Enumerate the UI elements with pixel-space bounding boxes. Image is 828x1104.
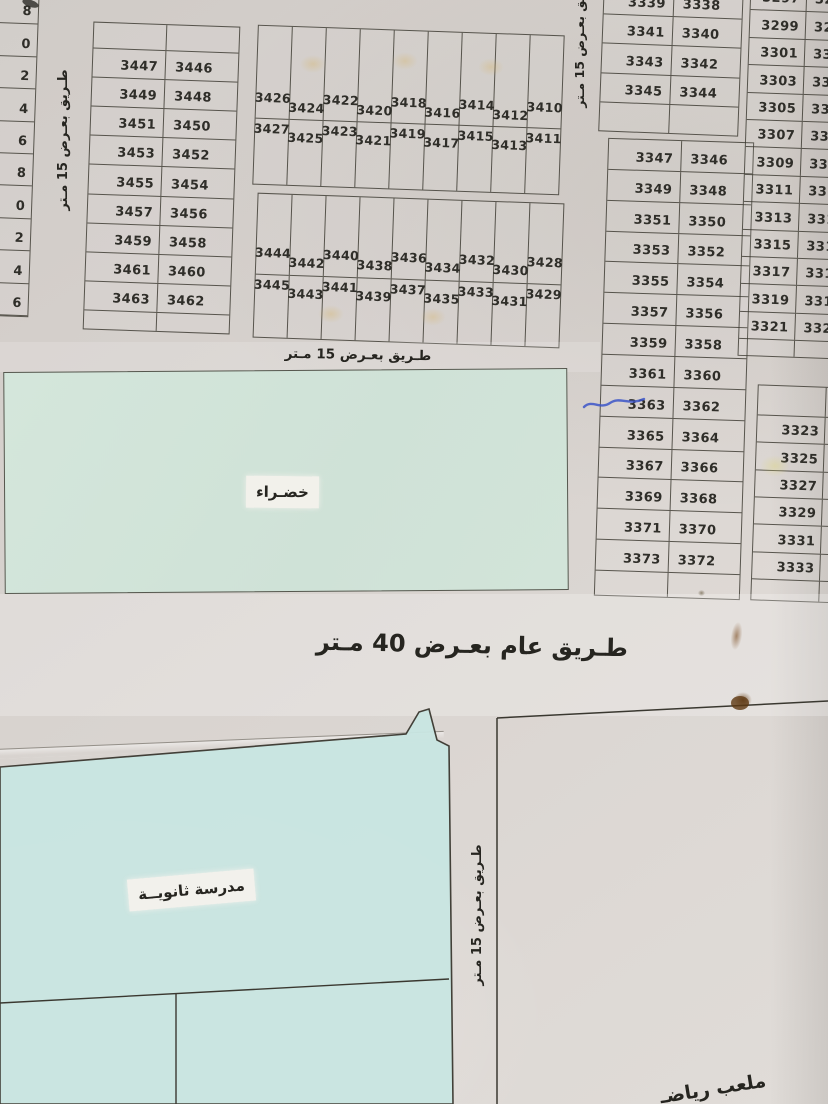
plot-number: 3359 <box>602 324 676 356</box>
plot-row: 3307 3306 <box>746 120 828 151</box>
plot-cell: 3419 <box>389 124 424 190</box>
plot-number: 3308 <box>801 149 828 178</box>
plot-row: 3357 3356 <box>603 293 748 328</box>
road-label-40: طـريق عام بعـرض 40 مـتر <box>322 623 623 667</box>
plot-number: 3418 <box>390 96 427 110</box>
plot-cell: 3432 <box>460 201 496 283</box>
plot-cell: 3443 <box>288 276 323 339</box>
plot-number: 3342 <box>671 46 740 77</box>
plot-number: 3421 <box>355 135 392 149</box>
plot-number: 3367 <box>599 447 673 479</box>
empty-plot-cell <box>595 571 740 600</box>
plot-number: 3333 <box>752 552 821 581</box>
plot-number: 3310 <box>800 177 828 206</box>
plot-strip: 3444 3445 <box>254 194 293 338</box>
plot-number: 3340 <box>672 17 741 48</box>
plot-number: 3358 <box>675 326 747 358</box>
plot-number: 3463 <box>84 281 158 312</box>
plot-row: 0 <box>0 184 32 219</box>
plot-number: 3341 <box>603 14 674 45</box>
plot-number: 3302 <box>804 67 828 96</box>
plot-cell: 3414 <box>459 33 495 128</box>
plot-number: 0 <box>0 22 37 56</box>
plot-number: 3347 <box>608 139 682 171</box>
plot-row: 3373 3372 <box>596 540 741 575</box>
plot-number: 3366 <box>671 450 743 482</box>
plot-number: 3352 <box>678 234 750 266</box>
plot-number: 3311 <box>744 175 801 203</box>
plot-number: 3417 <box>423 137 460 151</box>
sports-field-parcel <box>488 695 828 1104</box>
plot-strip: 3424 3425 <box>287 27 326 186</box>
plot-strip: 3418 3419 <box>389 30 428 189</box>
block-north-strips: 3426 3427 3424 3425 3422 <box>252 25 564 196</box>
plot-number: 2 <box>0 216 31 250</box>
plot-number: 3320 <box>795 313 828 342</box>
plot-number: 3301 <box>749 38 806 66</box>
plot-number: 3349 <box>607 170 681 202</box>
road-label-15-mid-vertical: طريق بعـرض 15 مـتر <box>569 0 589 137</box>
plot-number: 3410 <box>526 101 563 115</box>
plot-cell: 3442 <box>290 195 326 277</box>
plot-cell: 3426 <box>256 26 292 121</box>
plot-number: 3451 <box>90 107 164 138</box>
block-far-east-upper: 3297 3296 3299 3298 3301 3300 3303 3302 … <box>738 0 828 360</box>
plot-cell: 3433 <box>457 282 492 345</box>
plot-cell: 3424 <box>290 27 326 122</box>
plot-cell: 3422 <box>324 28 360 123</box>
plot-number: 3360 <box>674 357 746 389</box>
plot-cell: 3418 <box>392 30 428 125</box>
plot-row: 3315 3314 <box>742 229 828 260</box>
plot-row: 8 <box>0 0 39 25</box>
plot-number: 3457 <box>87 194 161 225</box>
plot-cell: 3412 <box>493 34 529 129</box>
plot-number: 3430 <box>492 264 529 278</box>
plot-number: 3411 <box>525 133 562 147</box>
plot-cell: 3415 <box>457 126 492 192</box>
plot-number: 3364 <box>672 419 744 451</box>
plot-number: 3312 <box>799 204 828 233</box>
plot-number: 3321 <box>739 312 796 340</box>
plot-row: 2 <box>0 216 31 251</box>
plot-number: 3445 <box>254 278 291 292</box>
plot-number: 3425 <box>287 132 324 146</box>
plot-cell: 3445 <box>254 274 289 337</box>
empty-plot-cell <box>84 310 230 333</box>
plot-cell: 3421 <box>355 123 390 189</box>
plot-number: 3441 <box>322 281 359 295</box>
pen-mark-scribble <box>582 394 646 414</box>
plot-cell: 3441 <box>322 277 357 340</box>
plot-row: 4 <box>0 87 35 122</box>
plot-number: 3317 <box>741 257 798 285</box>
plot-number: 3299 <box>750 10 807 38</box>
plot-row: 3325 <box>756 443 828 474</box>
plot-row: 8 <box>0 152 33 187</box>
plot-number: 3428 <box>527 256 564 270</box>
plot-number: 3433 <box>457 286 494 300</box>
plot-number: 3443 <box>287 288 324 302</box>
plot-number: 3454 <box>162 167 235 198</box>
plot-cell: 3438 <box>358 197 394 279</box>
plot-row: 3321 3320 <box>739 312 828 343</box>
plot-number: 3412 <box>492 109 529 123</box>
plot-number: 3455 <box>88 165 162 196</box>
plot-strip: 3422 3423 <box>321 28 360 187</box>
plot-row: 3317 3316 <box>741 257 828 288</box>
plot-number: 3300 <box>805 40 828 69</box>
plot-number: 3313 <box>743 202 800 230</box>
plot-cell: 3434 <box>426 200 462 282</box>
plot-row: 3313 3312 <box>743 202 828 233</box>
block-mid-strips: 3444 3445 3442 3443 3440 <box>253 193 565 349</box>
plot-number: 3305 <box>747 93 804 121</box>
plot-number: 3415 <box>457 130 494 144</box>
plot-number: 3416 <box>424 106 461 120</box>
plot-number: 3420 <box>356 104 393 118</box>
plot-strip: 3412 3413 <box>491 34 530 193</box>
plot-number: 3327 <box>755 470 824 499</box>
plot-strip: 3410 3411 <box>525 35 563 194</box>
plot-strip: 3436 3437 <box>390 198 429 342</box>
plot-number: 3315 <box>742 229 799 257</box>
plot-number: 4 <box>0 87 35 121</box>
plot-number: 3329 <box>754 497 823 526</box>
plot-row: 3351 3350 <box>606 201 751 236</box>
plot-number: 3436 <box>391 252 428 266</box>
plot-row: 6 <box>0 281 28 316</box>
plot-number: 3365 <box>600 416 674 448</box>
plot-row: 3329 <box>754 497 828 528</box>
plot-number: 3318 <box>796 286 828 315</box>
road-label-15-left-vertical: طـريق بعـرض 15 مـتر <box>53 49 73 231</box>
plot-number: 3434 <box>424 262 461 276</box>
plot-row: 3303 3302 <box>748 65 828 96</box>
plot-number: 3427 <box>253 123 290 137</box>
plot-number: 3298 <box>806 12 828 41</box>
plot-cell: 3429 <box>525 284 560 347</box>
left-edge-block: 8 0 2 4 6 8 0 2 4 6 <box>0 0 40 317</box>
plot-cell: 3435 <box>423 280 458 343</box>
plot-row: 3367 3366 <box>599 447 744 482</box>
plot-strip: 3414 3415 <box>457 33 496 192</box>
plot-strip: 3426 3427 <box>253 26 292 185</box>
plot-number: 3368 <box>670 480 742 512</box>
block-far-east-lower: 3323 3325 3327 3329 3331 3333 <box>750 384 828 603</box>
block-northeast: 3339 3338 3341 3340 3343 3342 3345 3344 <box>598 0 744 137</box>
plot-number: 3354 <box>677 265 749 297</box>
plot-number: 3323 <box>757 415 826 444</box>
plot-number: 3316 <box>797 259 828 288</box>
plot-cell: 3420 <box>358 29 394 124</box>
cadastral-map-photo: 8 0 2 4 6 8 0 2 4 6 <box>0 0 828 1104</box>
plot-number: 3437 <box>389 283 426 297</box>
plot-cell: 3440 <box>324 196 360 278</box>
plot-number: 3345 <box>600 73 671 104</box>
block-east: 3347 3346 3349 3348 3351 3350 3353 3352 … <box>594 138 754 600</box>
plot-cell: 3437 <box>390 279 425 342</box>
plot-number: 3446 <box>166 51 239 82</box>
plot-number: 3453 <box>89 136 163 167</box>
plot-row: 3371 3370 <box>597 509 742 544</box>
plot-number: 3458 <box>160 226 233 257</box>
plot-number: 3344 <box>670 76 739 107</box>
plot-row: 3311 3310 <box>744 175 828 206</box>
plot-number: 3348 <box>680 172 752 204</box>
plot-number: 3361 <box>601 355 675 387</box>
plot-cell: 3425 <box>287 120 322 186</box>
plot-number: 3304 <box>803 95 828 124</box>
plot-strip: 3442 3443 <box>288 195 327 339</box>
plot-row: 3323 <box>757 415 828 446</box>
plot-number: 3346 <box>681 141 753 173</box>
plot-number: 3447 <box>92 49 166 80</box>
school-area <box>0 703 460 1104</box>
plot-number: 4 <box>0 249 30 283</box>
plot-cell: 3423 <box>321 122 356 188</box>
plot-number: 3362 <box>673 388 745 420</box>
plot-cell: 3436 <box>392 198 428 280</box>
plot-number: 3439 <box>355 290 392 304</box>
plot-number: 6 <box>0 281 28 315</box>
plot-number: 3423 <box>321 125 358 139</box>
plot-cell: 3410 <box>527 35 563 130</box>
green-area-label: خضـراء <box>246 476 319 509</box>
plot-row: 3333 <box>752 552 828 583</box>
plot-row: 3347 3346 <box>608 139 753 174</box>
plot-number: 3319 <box>740 284 797 312</box>
plot-number: 3429 <box>525 288 562 302</box>
plot-number: 3351 <box>606 201 680 233</box>
plot-number: 3424 <box>288 102 325 116</box>
plot-number: 3331 <box>753 525 822 554</box>
plot-number: 3356 <box>676 295 748 327</box>
plot-cell: 3416 <box>425 32 461 127</box>
plot-number: 3372 <box>668 542 740 574</box>
plot-number: 3419 <box>389 128 426 142</box>
plot-row: 2 <box>0 55 36 90</box>
plot-cell: 3444 <box>256 194 292 276</box>
plot-row: 0 <box>0 22 37 57</box>
plot-strip: 3440 3441 <box>322 196 361 340</box>
plot-strip: 3430 3431 <box>491 202 530 346</box>
plot-row: 4 <box>0 249 30 284</box>
plot-number: 3460 <box>159 255 232 286</box>
plot-number: 3353 <box>605 231 679 263</box>
plot-row: 3327 <box>755 470 828 501</box>
stain <box>729 621 744 650</box>
plot-number: 2 <box>0 55 36 89</box>
plot-cell: 3439 <box>356 278 391 341</box>
plot-number: 8 <box>0 152 33 186</box>
plot-cell: 3417 <box>423 125 458 191</box>
road-label-15-right-vertical: طـريق بعـرض 15 مـتر <box>467 824 487 1006</box>
plot-number: 3338 <box>673 0 742 18</box>
plot-number: 3307 <box>746 120 803 148</box>
empty-plot-cell <box>739 339 828 359</box>
plot-row: 3331 <box>753 525 828 556</box>
plot-number: 3461 <box>85 252 159 283</box>
plot-cell: 3413 <box>491 127 526 193</box>
plot-strip: 3416 3417 <box>423 32 462 191</box>
road-label-15-horizontal: طـريق بعـرض 15 مـتر <box>238 342 478 368</box>
plot-number: 3440 <box>323 249 360 263</box>
plot-number: 3350 <box>679 203 751 235</box>
plot-number: 3435 <box>423 292 460 306</box>
plot-row: 3305 3304 <box>747 93 828 124</box>
plot-number: 3297 <box>751 0 808 11</box>
plot-row: 3359 3358 <box>602 324 747 359</box>
plot-number: 3343 <box>601 43 672 74</box>
plot-number: 3438 <box>356 259 393 273</box>
plot-number: 3357 <box>603 293 677 325</box>
plot-number: 3462 <box>158 284 231 315</box>
plot-number: 3371 <box>597 509 671 541</box>
block-west: 3447 3446 3449 3448 3451 3450 3453 3452 … <box>83 22 241 335</box>
plot-row: 3309 3308 <box>745 147 828 178</box>
plot-number: 3450 <box>164 109 237 140</box>
plot-cell: 3427 <box>253 119 288 185</box>
plot-row: 3361 3360 <box>601 355 746 390</box>
plot-number: 3370 <box>669 511 741 543</box>
plot-number: 8 <box>0 0 39 24</box>
plot-number: 3442 <box>288 257 325 271</box>
empty-plot-cell <box>758 385 828 418</box>
plot-number: 6 <box>0 119 34 153</box>
plot-row: 6 <box>0 119 34 154</box>
plot-number: 3413 <box>491 139 528 153</box>
plot-number: 3306 <box>802 122 828 151</box>
plot-strip: 3420 3421 <box>355 29 394 188</box>
empty-plot-cell <box>751 579 828 602</box>
empty-plot-cell <box>599 102 738 135</box>
plot-strip: 3438 3439 <box>356 197 395 341</box>
plot-number: 3431 <box>491 295 528 309</box>
plot-number: 3422 <box>322 94 359 108</box>
plot-number: 3444 <box>255 247 292 261</box>
plot-cell: 3411 <box>525 129 560 195</box>
plot-strip: 3428 3429 <box>525 203 563 347</box>
plot-cell: 3431 <box>491 283 526 346</box>
plot-number: 3414 <box>458 99 495 113</box>
plot-number: 3426 <box>254 92 291 106</box>
plot-strip: 3432 3433 <box>457 201 496 345</box>
plot-row: 3349 3348 <box>607 170 752 205</box>
plot-number: 3314 <box>798 231 828 260</box>
plot-number: 3325 <box>756 443 825 472</box>
plot-number: 3432 <box>459 254 496 268</box>
plot-strip: 3434 3435 <box>423 200 462 344</box>
plot-row: 3301 3300 <box>749 38 828 69</box>
plot-number: 3452 <box>163 138 236 169</box>
plot-number: 3373 <box>596 540 670 572</box>
plot-number: 3303 <box>748 65 805 93</box>
plot-cell: 3430 <box>494 202 530 284</box>
plot-row: 3319 3318 <box>740 284 828 315</box>
plot-row: 3355 3354 <box>604 262 749 297</box>
plot-row: 3353 3352 <box>605 231 750 266</box>
plot-number: 0 <box>0 184 32 218</box>
plot-number: 3339 <box>604 0 675 16</box>
plot-number: 3369 <box>598 478 672 510</box>
plot-number: 3448 <box>165 80 238 111</box>
plot-number: 3456 <box>161 197 234 228</box>
plot-row: 3369 3368 <box>598 478 743 513</box>
plot-number: 3449 <box>91 78 165 109</box>
plot-row: 3299 3298 <box>750 10 828 41</box>
plot-row: 3365 3364 <box>600 416 745 451</box>
plot-number: 3309 <box>745 147 802 175</box>
plot-cell: 3428 <box>528 203 564 285</box>
plot-number: 3459 <box>86 223 160 254</box>
plot-number: 3355 <box>604 262 678 294</box>
